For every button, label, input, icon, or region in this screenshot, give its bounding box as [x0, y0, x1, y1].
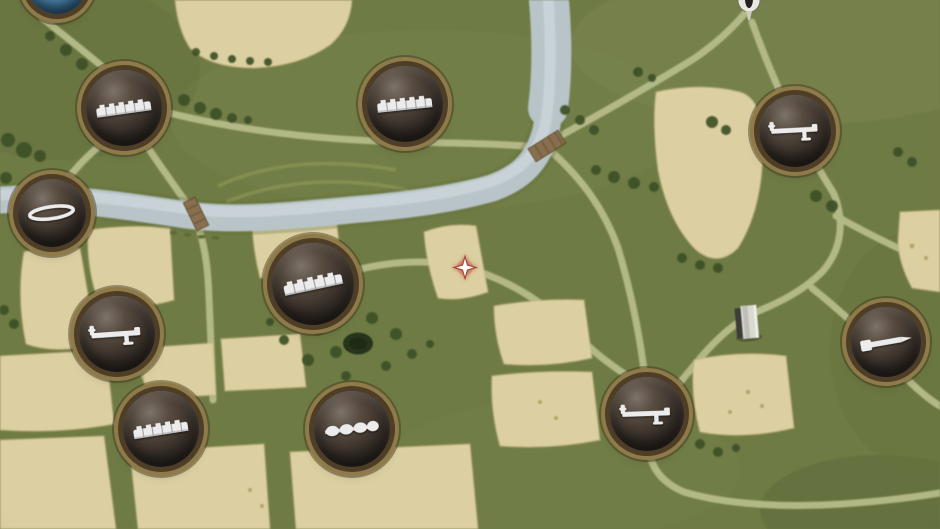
map-indicators — [0, 0, 940, 529]
map-pin-icon[interactable] — [735, 0, 765, 28]
waypoint-star-icon — [451, 254, 479, 287]
game-map-viewport[interactable] — [0, 0, 940, 529]
